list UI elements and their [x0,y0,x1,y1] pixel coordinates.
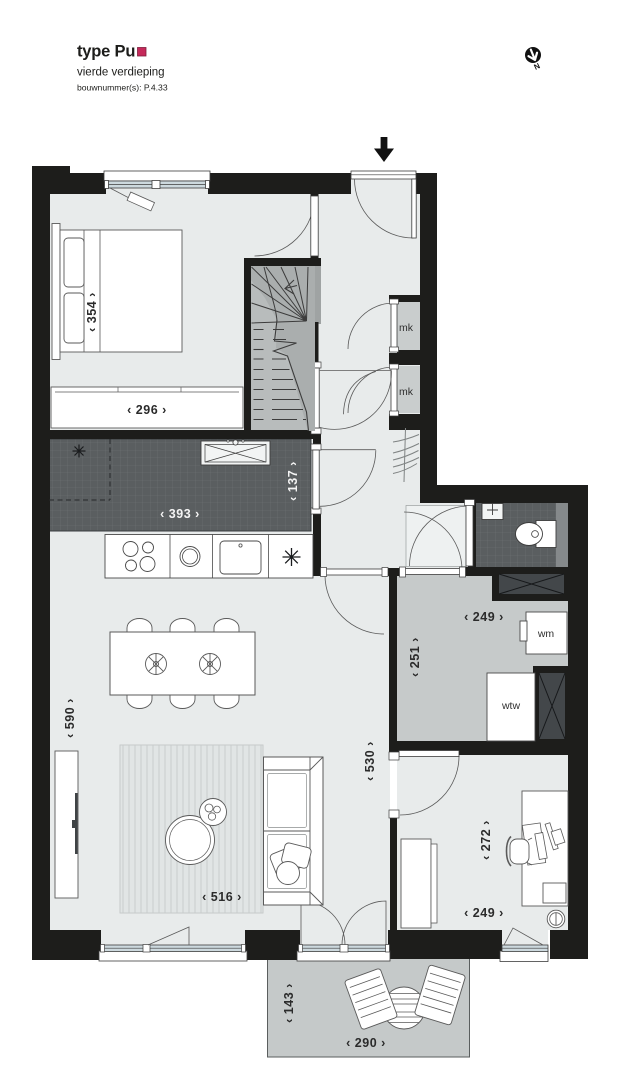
svg-text:wtw: wtw [501,700,521,712]
svg-text:vierde verdieping: vierde verdieping [77,67,165,79]
svg-text:‹ 137 ›: ‹ 137 › [286,461,300,501]
svg-text:type Pu: type Pu [77,43,135,61]
svg-text:bouwnummer(s): P.4.33: bouwnummer(s): P.4.33 [77,83,168,93]
svg-text:‹ 272 ›: ‹ 272 › [479,820,493,860]
svg-text:‹ 296 ›: ‹ 296 › [127,403,167,417]
svg-text:‹ 354 ›: ‹ 354 › [85,292,99,332]
svg-text:‹ 290 ›: ‹ 290 › [346,1036,386,1050]
svg-text:‹ 249 ›: ‹ 249 › [464,610,504,624]
svg-text:‹ 530 ›: ‹ 530 › [363,741,377,781]
svg-text:mk: mk [399,386,414,398]
svg-text:‹ 516 ›: ‹ 516 › [202,890,242,904]
svg-text:‹ 590 ›: ‹ 590 › [63,698,77,738]
svg-text:mk: mk [399,322,414,334]
svg-text:‹ 251 ›: ‹ 251 › [408,637,422,677]
svg-text:‹ 143 ›: ‹ 143 › [282,983,296,1023]
svg-text:‹ 393 ›: ‹ 393 › [160,507,200,521]
svg-text:wm: wm [537,628,555,640]
svg-text:‹ 249 ›: ‹ 249 › [464,906,504,920]
